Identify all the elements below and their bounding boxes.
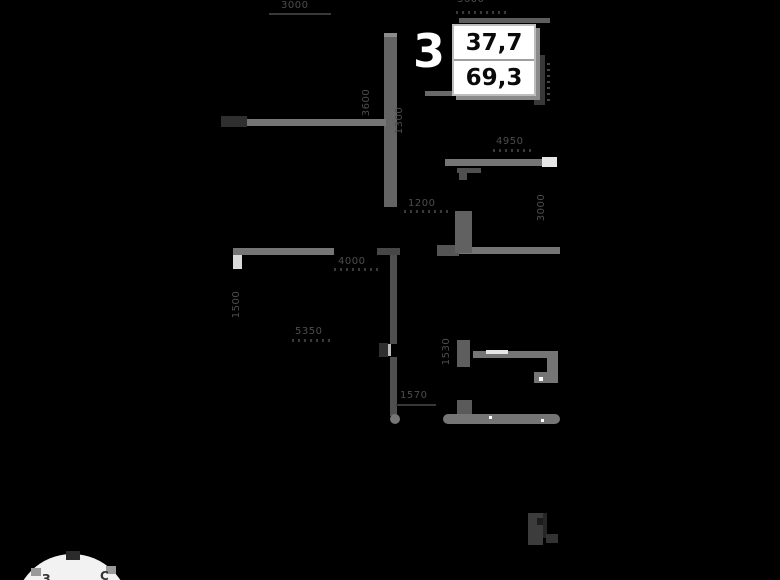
floor-plan: 3000 3600 3600 1300 4950 1200 3000 4000 … — [0, 0, 780, 580]
wall-gap — [489, 416, 492, 419]
rooms-count: 3 — [413, 28, 445, 74]
compass-letter-north: С — [100, 569, 109, 580]
compass-north-tick — [66, 551, 80, 560]
total-area: 69,3 — [454, 61, 534, 94]
dimension-label: 5350 — [295, 327, 322, 337]
apartment-info-box: 37,7 69,3 — [452, 24, 536, 96]
door-leaf — [459, 168, 467, 180]
wall-segment — [445, 159, 545, 166]
dimension-label-vertical: 3000 — [535, 189, 549, 225]
dimension-ticks — [547, 63, 550, 105]
wall-segment — [457, 400, 472, 414]
wall-segment — [457, 340, 470, 367]
wall-segment — [459, 18, 550, 23]
dimension-line — [396, 404, 436, 406]
wall-segment — [390, 357, 397, 416]
dimension-ticks — [334, 268, 378, 271]
dimension-line — [269, 13, 331, 15]
wall-segment — [534, 372, 558, 383]
dimension-label-vertical: 1300 — [393, 102, 407, 138]
window-cap — [542, 157, 557, 167]
living-area: 37,7 — [454, 26, 534, 61]
dimension-ticks — [292, 339, 332, 342]
wall-segment — [459, 247, 560, 254]
dimension-ticks — [404, 210, 448, 213]
compass-rose: З С — [14, 554, 130, 580]
door-ticks — [221, 116, 247, 127]
wall-gap — [539, 377, 543, 381]
shaft-strip — [546, 534, 558, 543]
dimension-label: 4000 — [338, 257, 365, 267]
dimension-label-vertical: 1530 — [440, 337, 454, 365]
dimension-label: 4950 — [496, 137, 523, 147]
window-cap — [486, 350, 508, 354]
wall-gap — [541, 419, 544, 422]
dimension-ticks — [493, 149, 531, 152]
dimension-label: 3000 — [281, 1, 308, 11]
wall-segment — [455, 211, 472, 253]
wall-segment — [390, 255, 397, 344]
compass-letter-west: З — [42, 572, 51, 580]
wall-segment — [377, 248, 400, 255]
compass-rim-mark — [31, 568, 41, 576]
dimension-label-vertical: 3600 — [360, 84, 374, 120]
dimension-ticks — [456, 11, 506, 14]
wall-segment — [245, 119, 386, 126]
wall-segment — [233, 248, 334, 255]
door-opening — [233, 255, 242, 269]
wall-segment — [379, 343, 388, 357]
dimension-label: 1570 — [400, 391, 427, 401]
dimension-label-vertical: 1500 — [230, 287, 244, 321]
dimension-label: 1200 — [408, 199, 435, 209]
dimension-label: 3600 — [457, 0, 484, 5]
column — [390, 414, 400, 424]
